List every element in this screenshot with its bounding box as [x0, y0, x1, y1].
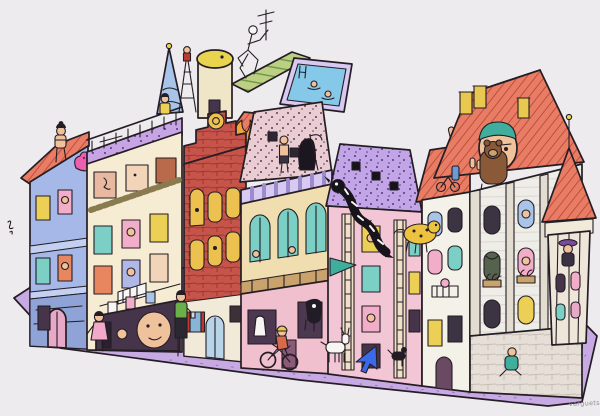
gable-medallion	[208, 113, 224, 129]
blue-bottle	[452, 166, 459, 180]
artist-signature: varguets	[569, 399, 600, 408]
terrace-person	[160, 93, 170, 114]
white-ground-floor	[184, 294, 246, 362]
illustration-canvas: varguets	[0, 0, 600, 416]
water-tower	[197, 50, 233, 118]
arched-door	[48, 309, 66, 348]
illustration-stage: varguets	[0, 0, 600, 416]
